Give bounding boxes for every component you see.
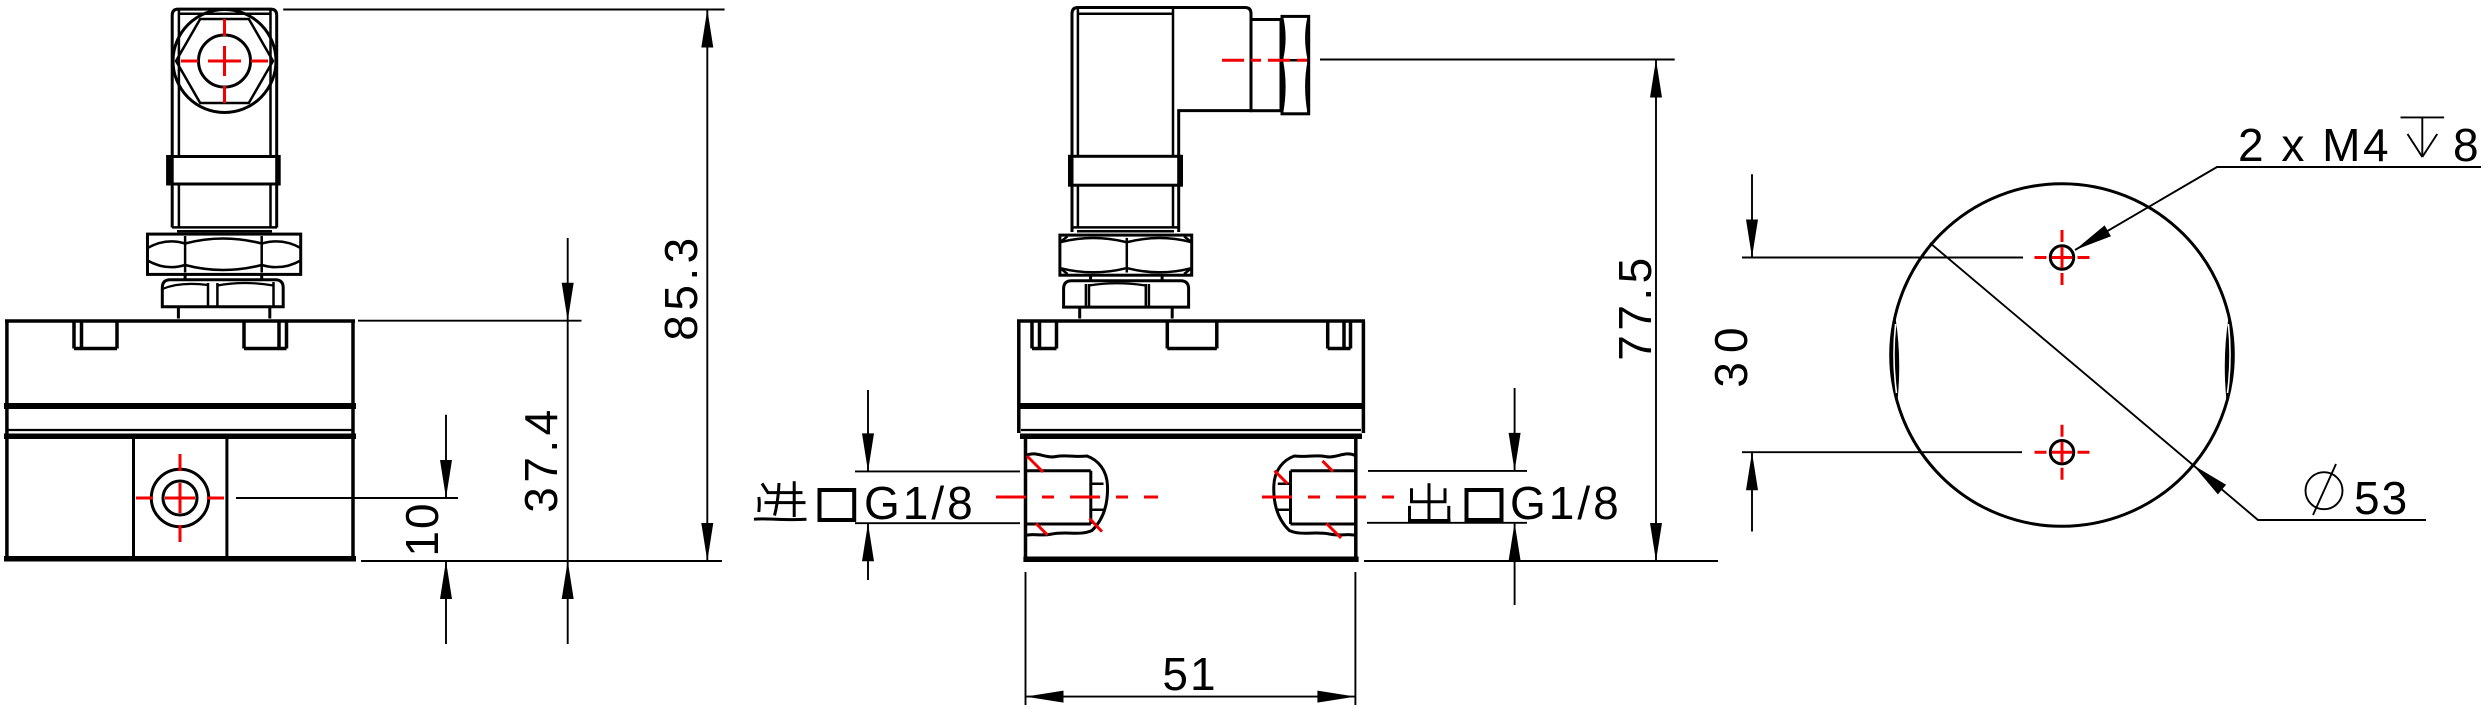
svg-text:85.3: 85.3 [655, 233, 707, 341]
svg-text:37.4: 37.4 [515, 405, 567, 513]
svg-text:G1/8: G1/8 [1510, 477, 1622, 529]
svg-text:30: 30 [1705, 318, 1757, 387]
svg-text:51: 51 [1162, 648, 1217, 700]
svg-text:G1/8: G1/8 [864, 477, 976, 529]
svg-text:2 x M4: 2 x M4 [2238, 119, 2391, 171]
svg-text:8: 8 [2453, 119, 2481, 171]
svg-text:77.5: 77.5 [1609, 253, 1661, 361]
svg-text:10: 10 [396, 501, 448, 556]
svg-text:53: 53 [2354, 472, 2409, 524]
